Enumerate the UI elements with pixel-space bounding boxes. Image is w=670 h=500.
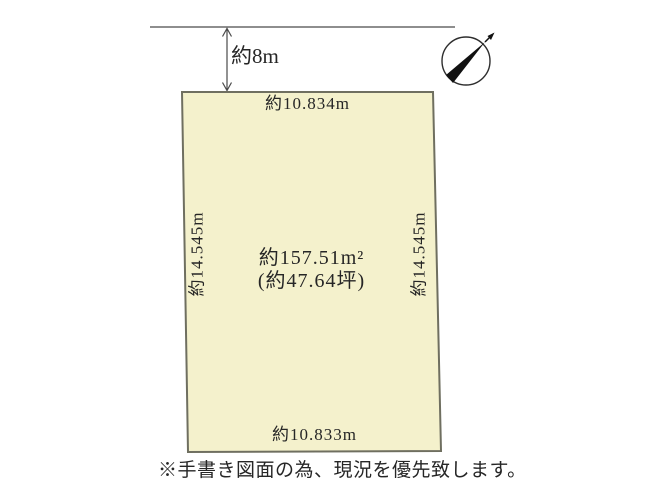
- setback-distance-label: 約8m: [231, 45, 279, 68]
- disclaimer-note: ※手書き図面の為、現況を優先致します。: [158, 461, 527, 482]
- bottom-dimension-label: 約10.833m: [188, 426, 441, 445]
- north-compass-icon: [442, 33, 495, 86]
- plot-area-block: 約157.51m² (約47.64坪): [184, 247, 439, 293]
- land-plot-diagram: 約8m 約10.834m 約14.545m 約14.545m 約10.833m …: [0, 0, 670, 500]
- top-dimension-label: 約10.834m: [182, 95, 433, 114]
- area-tsubo-label: (約47.64坪): [184, 270, 439, 293]
- area-sqm-label: 約157.51m²: [184, 247, 439, 270]
